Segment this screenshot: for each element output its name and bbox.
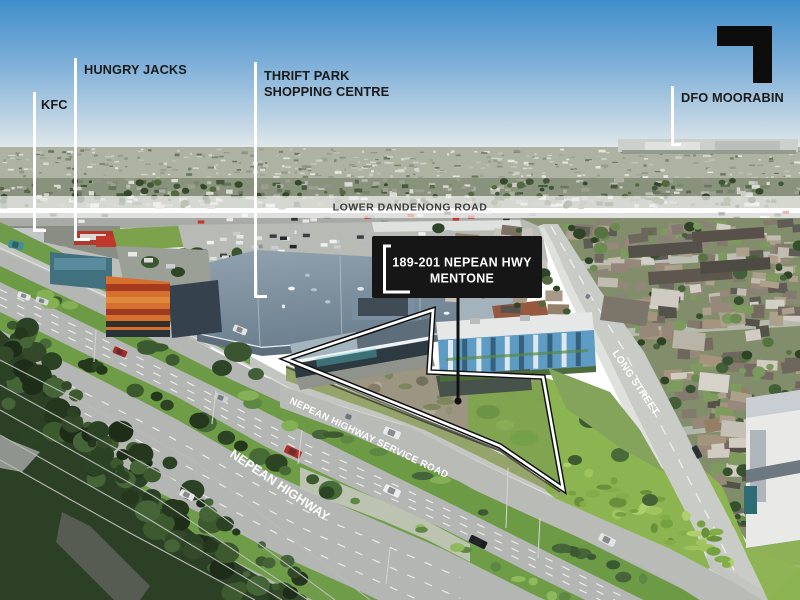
svg-text:SHOPPING CENTRE: SHOPPING CENTRE <box>264 84 390 99</box>
svg-text:LOWER DANDENONG ROAD: LOWER DANDENONG ROAD <box>333 202 488 214</box>
svg-text:KFC: KFC <box>41 97 68 112</box>
svg-text:DFO MOORABIN: DFO MOORABIN <box>681 90 784 105</box>
svg-text:THRIFT PARK: THRIFT PARK <box>264 68 350 83</box>
svg-text:HUNGRY JACKS: HUNGRY JACKS <box>84 62 187 77</box>
svg-text:MENTONE: MENTONE <box>430 272 494 286</box>
svg-text:189-201 NEPEAN HWY: 189-201 NEPEAN HWY <box>392 256 532 270</box>
